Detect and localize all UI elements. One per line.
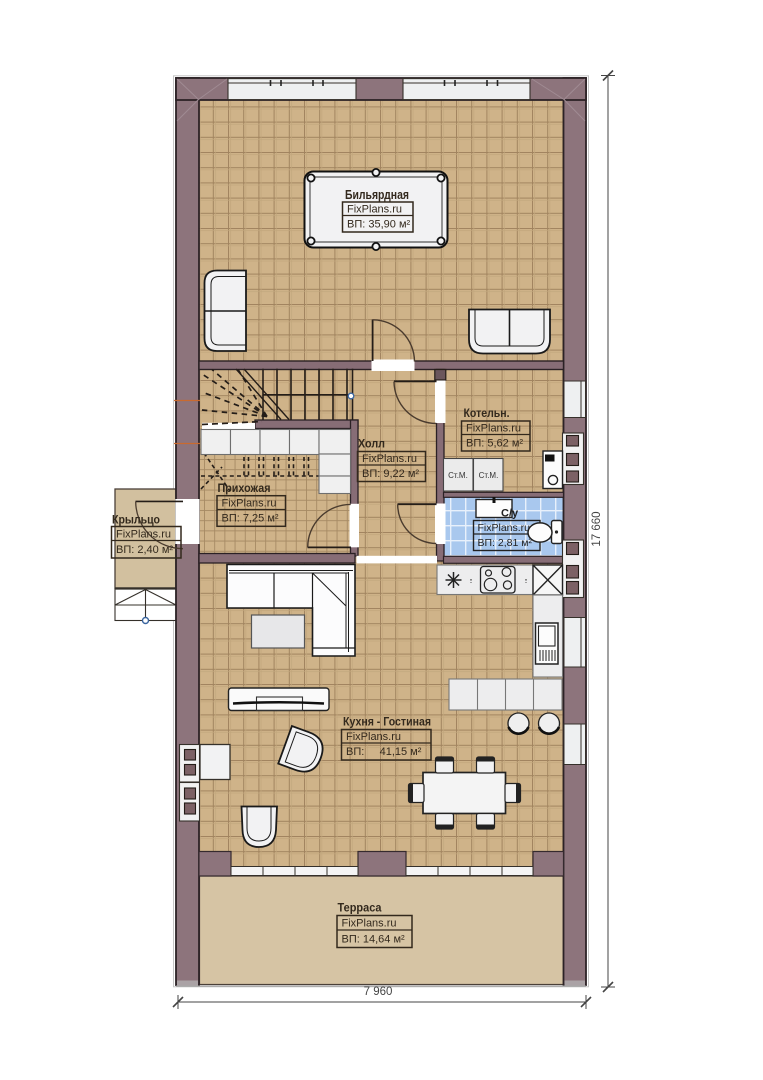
svg-text:7 960: 7 960 [364,986,393,998]
svg-text:FixPlans.ru: FixPlans.ru [362,453,417,465]
svg-text:ВП: 2,81 м²: ВП: 2,81 м² [478,537,533,549]
svg-text:ВП: 9,22 м²: ВП: 9,22 м² [362,468,419,480]
svg-text:С/у: С/у [501,508,519,520]
svg-text:Крыльцо: Крыльцо [112,513,160,527]
svg-text:ВП: 7,25 м²: ВП: 7,25 м² [222,513,279,525]
svg-text:Котельн.: Котельн. [464,406,510,420]
svg-text:FixPlans.ru: FixPlans.ru [116,529,171,541]
svg-text:Бильярдная: Бильярдная [345,188,409,202]
svg-text:Кухня - Гостиная: Кухня - Гостиная [343,715,431,729]
svg-text:ВП: 14,64 м²: ВП: 14,64 м² [342,934,406,946]
svg-text:ВП: 2,40 м²: ВП: 2,40 м² [116,544,173,556]
svg-text:FixPlans.ru: FixPlans.ru [347,204,402,216]
svg-text:Ст.М.: Ст.М. [448,471,468,480]
svg-text:FixPlans.ru: FixPlans.ru [342,918,397,930]
svg-text:FixPlans.ru: FixPlans.ru [346,731,401,743]
svg-text:Терраса: Терраса [338,901,382,915]
svg-text:Прихожая: Прихожая [218,481,271,495]
svg-text:FixPlans.ru: FixPlans.ru [466,423,521,435]
svg-text:FixPlans.ru: FixPlans.ru [478,522,531,534]
svg-text:ВП: 41,15 м²: ВП: 41,15 м² [346,746,422,758]
svg-text:Ст.М.: Ст.М. [479,471,499,480]
svg-text:ВП: 35,90 м²: ВП: 35,90 м² [347,219,411,231]
svg-text:17 660: 17 660 [591,511,603,546]
svg-text:FixPlans.ru: FixPlans.ru [222,498,277,510]
svg-text:Холл: Холл [358,437,385,451]
svg-text:ВП: 5,62 м²: ВП: 5,62 м² [466,438,523,450]
